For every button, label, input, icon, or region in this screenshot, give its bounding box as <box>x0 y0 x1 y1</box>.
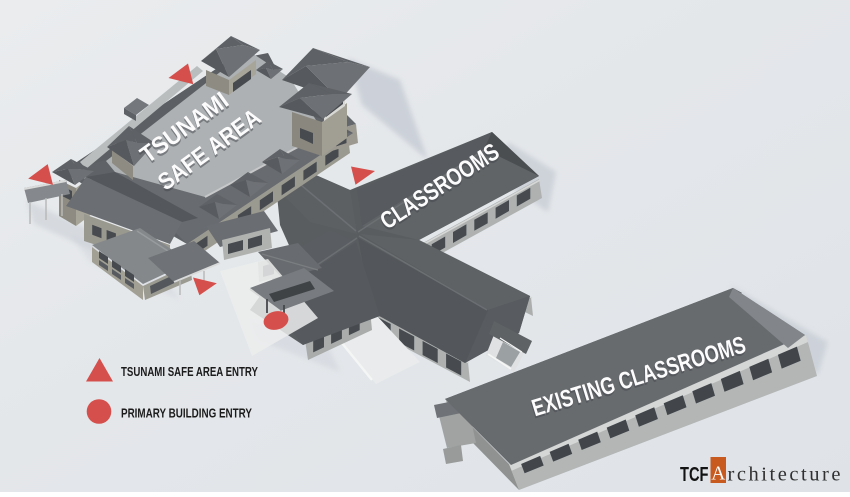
svg-text:PRIMARY BUILDING ENTRY: PRIMARY BUILDING ENTRY <box>121 406 252 421</box>
svg-text:TSUNAMI SAFE AREA ENTRY: TSUNAMI SAFE AREA ENTRY <box>121 364 258 379</box>
svg-text:rchitecture: rchitecture <box>728 464 841 486</box>
svg-text:TCF: TCF <box>680 464 709 486</box>
svg-text:A: A <box>711 464 725 485</box>
